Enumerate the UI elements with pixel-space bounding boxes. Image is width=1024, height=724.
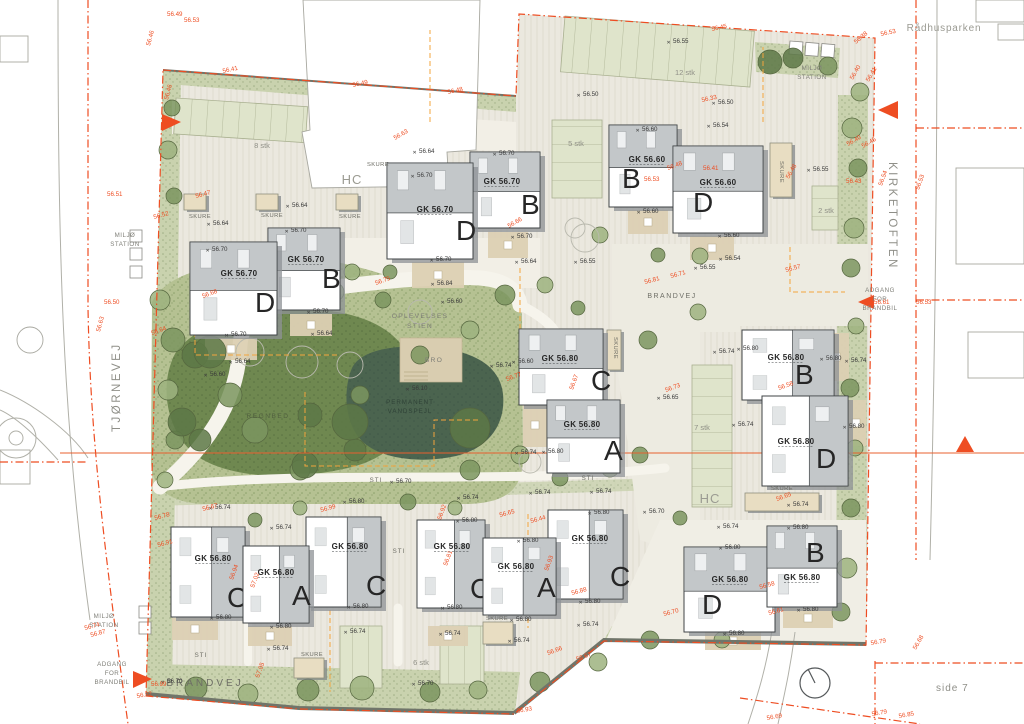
spot-elevation-marker-icon: ✕ [267, 647, 271, 653]
parking-area [692, 365, 732, 507]
spot-elevation: 56.74 [723, 523, 739, 530]
building-c: GK 56.80C [519, 329, 611, 409]
building-gk-label: GK 56.70 [221, 269, 258, 278]
map-label: STI [582, 475, 595, 482]
map-label: STIEN [407, 323, 433, 330]
building-c: GK 56.80C [306, 517, 386, 611]
building-d: GK 56.60D [673, 146, 768, 237]
spot-elevation-marker-icon: ✕ [411, 174, 415, 180]
boundary-elevation: 56.51 [107, 191, 123, 198]
spot-elevation-marker-icon: ✕ [643, 510, 647, 516]
boundary-elevation: 56.53 [184, 17, 200, 24]
spot-elevation: 56.74 [273, 645, 289, 652]
street-name-tjornevej: TJØRNEVEJ [111, 342, 123, 432]
spot-elevation: 56.50 [583, 91, 599, 98]
map-label: 2 stk [818, 206, 834, 215]
spot-elevation: 56.74 [596, 488, 612, 495]
spot-elevation-marker-icon: ✕ [441, 606, 445, 612]
spot-elevation: 56.64 [419, 148, 435, 155]
tree-icon [851, 83, 869, 101]
spot-elevation-marker-icon: ✕ [307, 310, 311, 316]
tree-icon [537, 277, 553, 293]
tree-icon [344, 439, 366, 461]
building-b: GK 56.70B [470, 152, 545, 232]
spot-elevation: 56.64 [213, 220, 229, 227]
map-label: 8 stk [254, 141, 270, 150]
map-label: MILJØ [94, 613, 115, 620]
map-label: ADGANG [865, 287, 895, 294]
building-letter: B [322, 263, 341, 294]
spot-elevation: 56.80 [725, 544, 741, 551]
tree-icon [168, 408, 196, 436]
building-gk-label: GK 56.60 [700, 178, 737, 187]
tree-icon [150, 290, 170, 310]
tree-icon [692, 248, 708, 264]
spot-elevation: 56.80 [216, 614, 232, 621]
tree-icon [639, 331, 657, 349]
spot-elevation-marker-icon: ✕ [412, 682, 416, 688]
spot-elevation-marker-icon: ✕ [719, 257, 723, 263]
spot-elevation: 56.74 [535, 489, 551, 496]
building-a: GK 56.80A [547, 400, 625, 477]
spot-elevation-marker-icon: ✕ [490, 364, 494, 370]
tree-icon [842, 259, 860, 277]
tree-icon [157, 472, 173, 488]
building-gk-label: GK 56.70 [484, 177, 521, 186]
spot-elevation: 56.55 [813, 166, 829, 173]
spot-elevation-marker-icon: ✕ [845, 359, 849, 365]
tree-icon [571, 301, 585, 315]
map-label: BRANDVEJ [647, 293, 696, 300]
tree-icon [632, 447, 648, 463]
building-gk-label: GK 56.80 [195, 554, 232, 563]
map-label: 7 stk [694, 423, 710, 432]
tree-icon [375, 292, 391, 308]
tree-icon [242, 417, 268, 443]
spot-elevation: 56.84 [437, 280, 453, 287]
spot-elevation: 56.65 [663, 394, 679, 401]
map-label: ADGANG [97, 661, 127, 668]
spot-elevation-marker-icon: ✕ [717, 525, 721, 531]
map-label: SKURE [612, 337, 618, 359]
spot-elevation-marker-icon: ✕ [511, 235, 515, 241]
spot-elevation: 56.64 [521, 258, 537, 265]
spot-elevation-marker-icon: ✕ [694, 266, 698, 272]
building-gk-label: GK 56.80 [784, 573, 821, 582]
building-letter: D [702, 589, 722, 620]
spot-elevation: 56.74 [521, 449, 537, 456]
map-label: OPLEVELSES [392, 313, 449, 320]
spot-elevation: 56.74 [445, 630, 461, 637]
spot-elevation: 56.70 [417, 172, 433, 179]
spot-elevation: 56.80 [585, 598, 601, 605]
spot-elevation: 56.70 [499, 150, 515, 157]
spot-elevation-marker-icon: ✕ [732, 423, 736, 429]
spot-elevation-marker-icon: ✕ [807, 168, 811, 174]
map-label: 12 stk [675, 68, 695, 77]
spot-elevation-marker-icon: ✕ [413, 150, 417, 156]
tree-icon [673, 511, 687, 525]
map-label: PERMANENT [386, 399, 434, 406]
boundary-elevation: 56.53 [916, 299, 932, 306]
spot-elevation-marker-icon: ✕ [457, 496, 461, 502]
spot-elevation-marker-icon: ✕ [456, 519, 460, 525]
spot-elevation-marker-icon: ✕ [579, 600, 583, 606]
spot-elevation-marker-icon: ✕ [206, 248, 210, 254]
spot-elevation-marker-icon: ✕ [713, 350, 717, 356]
spot-elevation: 56.74 [793, 501, 809, 508]
spot-elevation-marker-icon: ✕ [431, 282, 435, 288]
spot-elevation-marker-icon: ✕ [657, 396, 661, 402]
spot-elevation: 56.80 [594, 509, 610, 516]
spot-elevation-marker-icon: ✕ [542, 450, 546, 456]
north-indicator-icon [800, 668, 830, 698]
building-gk-label: GK 56.80 [572, 534, 609, 543]
building-a: GK 56.80A [483, 538, 561, 619]
building-gk-label: GK 56.80 [434, 542, 471, 551]
park-name: Rådhusparken [907, 22, 982, 34]
parking-area [552, 120, 602, 198]
spot-elevation: 56.80 [523, 537, 539, 544]
spot-elevation: 56.80 [548, 448, 564, 455]
page-number: side 7 [936, 683, 969, 694]
spot-elevation-marker-icon: ✕ [493, 152, 497, 158]
spot-elevation-marker-icon: ✕ [439, 632, 443, 638]
spot-elevation-marker-icon: ✕ [347, 605, 351, 611]
spot-elevation-marker-icon: ✕ [204, 373, 208, 379]
spot-elevation: 56.74 [496, 362, 512, 369]
building-letter: C [591, 365, 611, 396]
building-letter: D [816, 443, 836, 474]
spot-elevation-marker-icon: ✕ [441, 300, 445, 306]
building-gk-label: GK 56.70 [288, 255, 325, 264]
spot-elevation: 56.70 [212, 246, 228, 253]
spot-elevation-marker-icon: ✕ [225, 333, 229, 339]
spot-elevation: 56.60 [447, 298, 463, 305]
tree-icon [400, 494, 416, 510]
building-c: GK 56.80C [171, 527, 250, 621]
building-b: GK 56.80B [742, 330, 839, 404]
spot-elevation-marker-icon: ✕ [718, 234, 722, 240]
building-letter: A [537, 572, 556, 603]
spot-elevation: 56.74 [851, 357, 867, 364]
spot-elevation-marker-icon: ✕ [787, 503, 791, 509]
tree-icon [158, 380, 178, 400]
spot-elevation: 56.60 [642, 126, 658, 133]
map-label: STI [195, 652, 208, 659]
spot-elevation-marker-icon: ✕ [515, 451, 519, 457]
tree-icon [350, 676, 374, 700]
boundary-elevation: 56.61 [874, 299, 890, 306]
map-label: SKURE [486, 616, 508, 622]
spot-elevation-marker-icon: ✕ [590, 490, 594, 496]
spot-elevation: 56.80 [353, 603, 369, 610]
map-label: REGNBED [246, 413, 289, 420]
building-gk-label: GK 56.80 [542, 354, 579, 363]
spot-elevation-marker-icon: ✕ [270, 526, 274, 532]
spot-elevation: 56.70 [649, 508, 665, 515]
spot-elevation: 56.74 [276, 524, 292, 531]
boundary-elevation: 56.53 [644, 176, 660, 183]
spot-elevation-marker-icon: ✕ [574, 260, 578, 266]
spot-elevation-marker-icon: ✕ [588, 511, 592, 517]
building-letter: D [693, 187, 713, 218]
spot-elevation: 56.50 [718, 99, 734, 106]
tree-icon [530, 672, 550, 692]
spot-elevation: 56.60 [210, 371, 226, 378]
spot-elevation: 56.74 [463, 494, 479, 501]
tree-icon [460, 460, 480, 480]
spot-elevation: 56.54 [725, 255, 741, 262]
tree-icon [248, 513, 262, 527]
tree-icon [332, 404, 368, 440]
tree-icon [159, 141, 177, 159]
spot-elevation: 56.55 [580, 258, 596, 265]
tree-icon [469, 681, 487, 699]
spot-elevation: 56.80 [803, 606, 819, 613]
site-plan: GK 56.70BGK 56.70DGK 56.70BGK 56.70DGK 5… [0, 0, 1024, 724]
map-label: SKURE [261, 213, 283, 219]
spot-elevation-marker-icon: ✕ [207, 222, 211, 228]
tree-icon [450, 408, 490, 448]
spot-elevation-marker-icon: ✕ [229, 360, 233, 366]
spot-elevation-marker-icon: ✕ [311, 332, 315, 338]
map-label: FOR [105, 670, 120, 677]
spot-elevation: 56.70 [167, 678, 183, 685]
spot-elevation-marker-icon: ✕ [390, 480, 394, 486]
map-label: VANDSPEJL [388, 408, 433, 415]
spot-elevation-marker-icon: ✕ [508, 639, 512, 645]
spot-elevation: 56.60 [724, 232, 740, 239]
spot-elevation: 56.70 [313, 308, 329, 315]
building-letter: B [806, 537, 825, 568]
tree-icon [194, 336, 226, 368]
spot-elevation: 56.54 [713, 122, 729, 129]
spot-elevation-marker-icon: ✕ [577, 623, 581, 629]
building-gk-label: GK 56.80 [712, 575, 749, 584]
map-label: STI [393, 548, 406, 555]
building-gk-label: GK 56.80 [778, 437, 815, 446]
spot-elevation: 56.70 [291, 227, 307, 234]
spot-elevation-marker-icon: ✕ [286, 204, 290, 210]
tree-icon [293, 501, 307, 515]
boundary-elevation: 56.50 [104, 299, 120, 306]
map-label: STI [370, 477, 383, 484]
spot-elevation: 56.70 [517, 233, 533, 240]
spot-elevation: 56.60 [643, 208, 659, 215]
tree-icon [297, 679, 319, 701]
spot-elevation-marker-icon: ✕ [577, 93, 581, 99]
building-c: GK 56.80C [417, 520, 490, 612]
building-letter: D [255, 287, 275, 318]
street-name-kirketoften: KIRKETOFTEN [886, 162, 898, 270]
spot-elevation-marker-icon: ✕ [529, 491, 533, 497]
tree-icon [690, 304, 706, 320]
spot-elevation-marker-icon: ✕ [210, 616, 214, 622]
boundary-elevation: 56.41 [703, 165, 719, 172]
spot-elevation: 56.80 [826, 355, 842, 362]
spot-elevation: 56.55 [673, 38, 689, 45]
tree-icon [189, 429, 211, 451]
tree-icon [849, 159, 867, 177]
spot-elevation-marker-icon: ✕ [707, 124, 711, 130]
spot-elevation: 56.74 [514, 637, 530, 644]
building-letter: B [795, 359, 814, 390]
tree-icon [841, 379, 859, 397]
spot-elevation: 56.80 [276, 623, 292, 630]
map-label: BRANDBIL [95, 679, 130, 686]
spot-elevation: 56.80 [849, 423, 865, 430]
spot-elevation: 56.74 [738, 421, 754, 428]
building-b: GK 56.80B [767, 526, 842, 611]
spot-elevation: 56.70 [418, 680, 434, 687]
building-letter: C [366, 570, 386, 601]
spot-elevation: 56.80 [447, 604, 463, 611]
tree-icon [461, 321, 479, 339]
tree-icon [651, 248, 665, 262]
spot-elevation-marker-icon: ✕ [406, 387, 410, 393]
spot-elevation: 56.74 [719, 348, 735, 355]
spot-elevation-marker-icon: ✕ [737, 347, 741, 353]
shed [336, 194, 358, 210]
tree-icon [842, 499, 860, 517]
spot-elevation: 56.80 [516, 616, 532, 623]
spot-elevation-marker-icon: ✕ [515, 260, 519, 266]
spot-elevation: 56.80 [349, 498, 365, 505]
boundary-elevation: 56.43 [846, 178, 862, 185]
spot-elevation: 56.70 [436, 256, 452, 263]
building-letter: C [610, 561, 630, 592]
tree-icon [218, 383, 242, 407]
spot-elevation-marker-icon: ✕ [787, 526, 791, 532]
spot-elevation-marker-icon: ✕ [512, 360, 516, 366]
spot-elevation-marker-icon: ✕ [636, 128, 640, 134]
spot-elevation: 56.80 [462, 517, 478, 524]
building-gk-label: GK 56.80 [332, 542, 369, 551]
spot-elevation-marker-icon: ✕ [712, 101, 716, 107]
tree-icon [783, 48, 803, 68]
spot-elevation-marker-icon: ✕ [797, 608, 801, 614]
tree-icon [344, 264, 360, 280]
map-label: 5 stk [568, 139, 584, 148]
map-label: BRANDBIL [863, 305, 898, 312]
spot-elevation-marker-icon: ✕ [719, 546, 723, 552]
spot-elevation-marker-icon: ✕ [517, 539, 521, 545]
tree-icon [166, 188, 182, 204]
building-letter: B [622, 163, 641, 194]
tree-icon [495, 285, 515, 305]
map-label: SKURE [778, 161, 784, 183]
tree-icon [351, 386, 369, 404]
building-gk-label: GK 56.80 [258, 568, 295, 577]
spot-elevation: 56.55 [700, 264, 716, 271]
spot-elevation-marker-icon: ✕ [723, 632, 727, 638]
spot-elevation-marker-icon: ✕ [667, 40, 671, 46]
building-d: GK 56.70D [190, 242, 282, 339]
spot-elevation-marker-icon: ✕ [510, 618, 514, 624]
map-label: STATION [110, 241, 139, 248]
tree-icon [758, 50, 782, 74]
tree-icon [298, 403, 322, 427]
spot-elevation-marker-icon: ✕ [820, 357, 824, 363]
map-label: SKURE [339, 214, 361, 220]
spot-elevation-marker-icon: ✕ [270, 625, 274, 631]
building-letter: A [292, 580, 311, 611]
building-d: GK 56.80D [762, 396, 853, 490]
map-label: 6 stk [413, 658, 429, 667]
building-letter: B [521, 189, 540, 220]
boundary-elevation: 56.99 [151, 681, 167, 688]
spot-elevation-marker-icon: ✕ [343, 500, 347, 506]
map-label: SKURE [189, 214, 211, 220]
map-label: STATION [797, 74, 826, 81]
building-letter: D [456, 215, 476, 246]
spot-elevation-marker-icon: ✕ [843, 425, 847, 431]
map-label: MILJØ [115, 232, 136, 239]
building-letter: A [604, 435, 623, 466]
spot-elevation: 56.70 [396, 478, 412, 485]
tree-icon [848, 318, 864, 334]
spot-elevation-marker-icon: ✕ [430, 258, 434, 264]
spot-elevation-marker-icon: ✕ [285, 229, 289, 235]
spot-elevation: 56.80 [793, 524, 809, 531]
building-gk-label: GK 56.70 [417, 205, 454, 214]
building-d: GK 56.70D [387, 163, 478, 263]
map-label: SKURE [301, 652, 323, 658]
spot-elevation: 56.10 [412, 385, 428, 392]
building-gk-label: GK 56.80 [564, 420, 601, 429]
tree-icon [448, 501, 462, 515]
spot-elevation: 56.74 [350, 628, 366, 635]
spot-elevation: 56.80 [743, 345, 759, 352]
spot-elevation: 56.60 [518, 358, 534, 365]
shed [294, 658, 324, 678]
map-label: MILJØ [802, 65, 823, 72]
tree-icon [844, 218, 864, 238]
spot-elevation: 56.80 [729, 630, 745, 637]
spot-elevation-marker-icon: ✕ [344, 630, 348, 636]
map-label: SKURE [367, 162, 389, 168]
spot-elevation: 56.64 [292, 202, 308, 209]
shed [256, 194, 278, 210]
spot-elevation-marker-icon: ✕ [637, 210, 641, 216]
site-plan-canvas: GK 56.70BGK 56.70DGK 56.70BGK 56.70DGK 5… [0, 0, 1024, 724]
spot-elevation: 56.64 [317, 330, 333, 337]
tree-icon [592, 227, 608, 243]
building-gk-label: GK 56.80 [498, 562, 535, 571]
map-label: BRO [425, 357, 443, 364]
map-label: HC [342, 172, 363, 187]
building-d: GK 56.80D [684, 547, 780, 636]
spot-elevation: 56.70 [231, 331, 247, 338]
tree-icon [164, 100, 180, 116]
spot-elevation: 56.74 [583, 621, 599, 628]
spot-elevation: 56.64 [235, 358, 251, 365]
boundary-elevation: 56.49 [167, 11, 183, 18]
tree-icon [589, 653, 607, 671]
map-label: HC [700, 491, 721, 506]
